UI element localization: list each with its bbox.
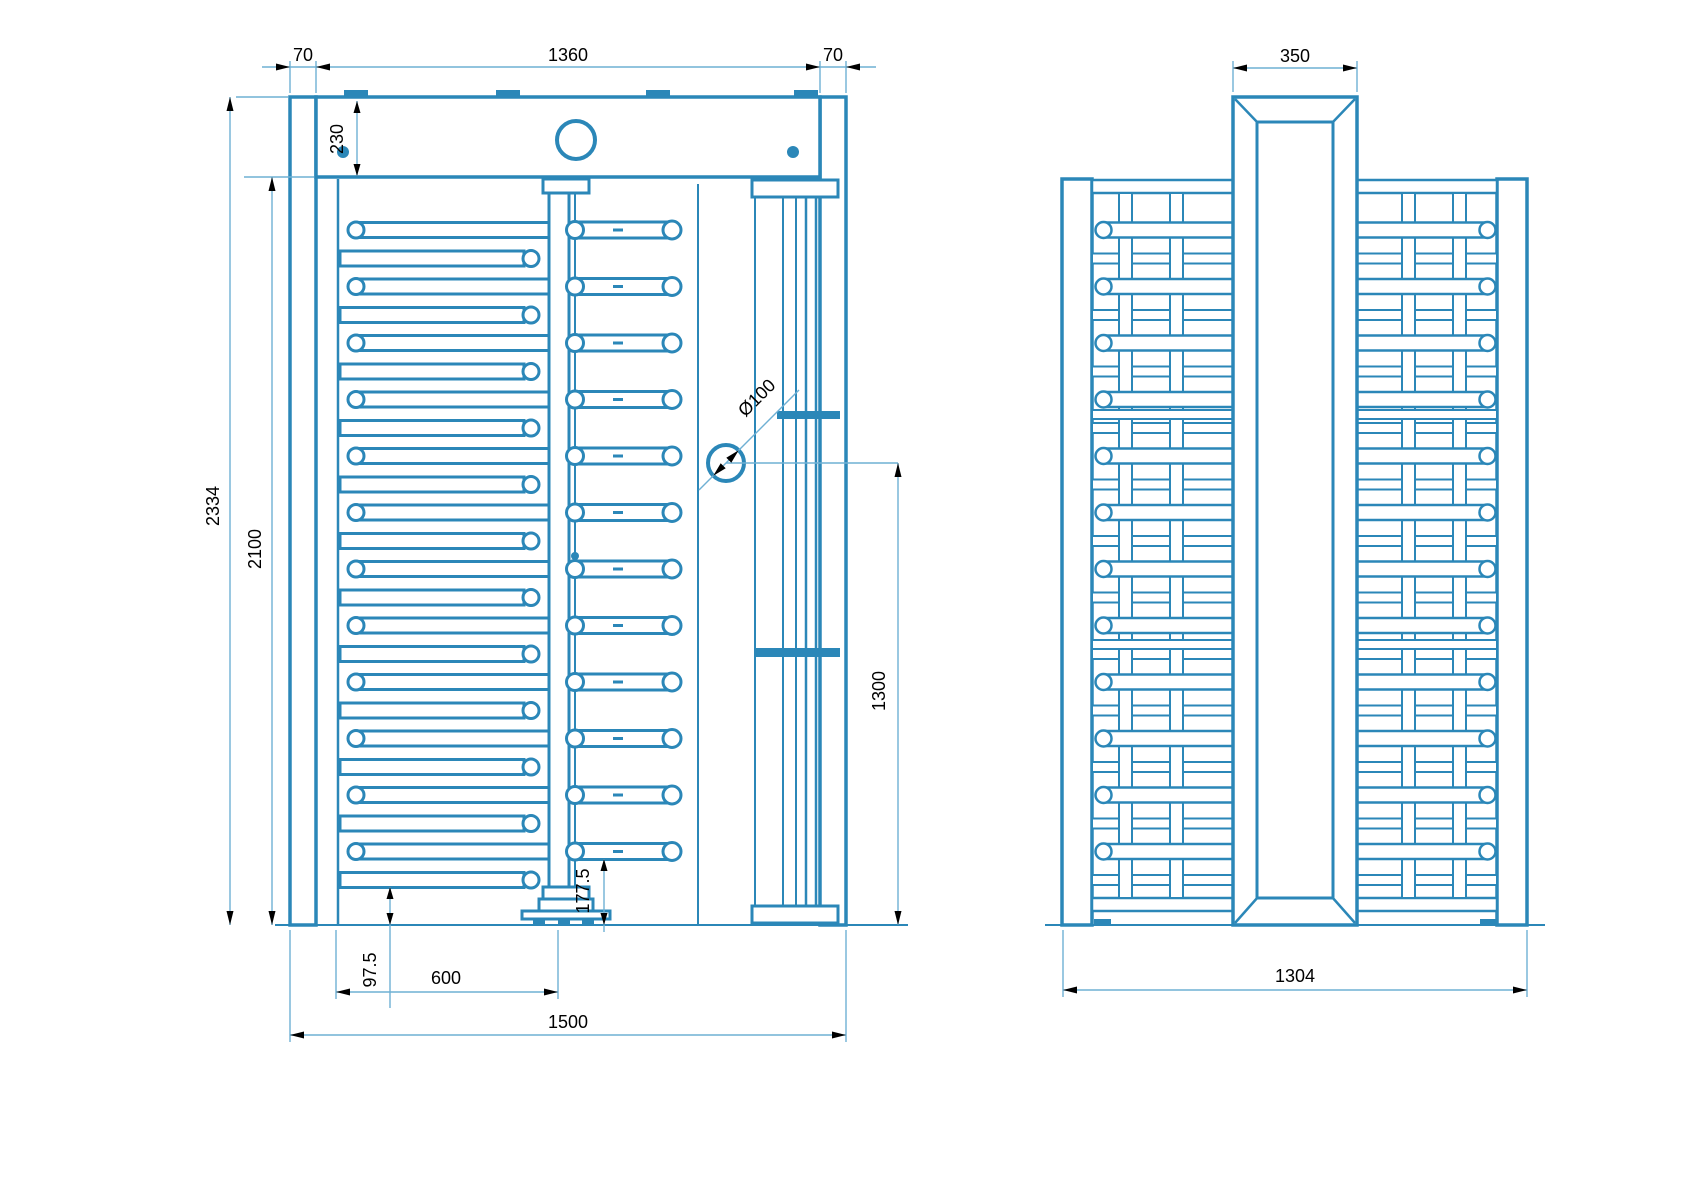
side-comb-bar: [1103, 449, 1233, 464]
rotor-arm-cap: [663, 617, 681, 635]
side-comb-bar-cap: [1480, 448, 1496, 464]
right-panel-top-rail: [1357, 180, 1497, 193]
side-comb-bar: [1103, 562, 1233, 577]
comb-bar-cap: [523, 307, 539, 323]
side-comb-bar-cap: [1480, 618, 1496, 634]
right-panel-mid-rail: [1357, 410, 1497, 419]
comb-bar: [340, 647, 524, 662]
dim-label-70-left: 70: [293, 45, 313, 65]
right-panel-mid-rail: [1357, 640, 1497, 649]
comb-bar-cap: [348, 279, 364, 295]
side-comb-bar-cap: [1480, 561, 1496, 577]
side-comb-bar: [1357, 392, 1487, 407]
wing-bottom-bracket: [752, 906, 838, 923]
rotor-arm-cap: [567, 843, 584, 860]
side-comb-bar: [1357, 675, 1487, 690]
left-panel-top-rail: [1092, 180, 1233, 193]
left-panel-mid-rail: [1092, 640, 1233, 649]
comb-bar-cap: [348, 392, 364, 408]
comb-bar: [340, 703, 524, 718]
turnstile-technical-drawing: 70 1360 70 230 2334 2100 Ø100 1300 97.5 …: [0, 0, 1684, 1190]
comb-bar: [357, 505, 549, 520]
side-comb-bar: [1103, 618, 1233, 633]
comb-bar: [357, 223, 549, 238]
side-comb-bar-cap: [1096, 731, 1112, 747]
side-thin-bar: [1357, 819, 1497, 829]
rotor-arm-cap: [567, 222, 584, 239]
rotor-arm-cap: [663, 730, 681, 748]
side-comb-bar-cap: [1096, 448, 1112, 464]
base-foot: [533, 919, 545, 925]
side-comb-bar: [1357, 788, 1487, 803]
side-comb-bar-cap: [1480, 731, 1496, 747]
rotor-arm-cap: [567, 448, 584, 465]
side-comb-bar: [1357, 279, 1487, 294]
dim-label-1304: 1304: [1275, 966, 1315, 986]
side-comb-bar-cap: [1096, 561, 1112, 577]
rotor-arm: [580, 335, 668, 351]
side-thin-bar: [1092, 875, 1233, 885]
dim-label-350: 350: [1280, 46, 1310, 66]
comb-bar-cap: [523, 872, 539, 888]
comb-bar: [340, 590, 524, 605]
center-column-face: [1257, 122, 1333, 898]
comb-bar-cap: [348, 448, 364, 464]
base-foot: [558, 919, 570, 925]
side-comb-bar-cap: [1096, 392, 1112, 408]
rotor-arm-cap: [567, 561, 584, 578]
header-tab: [646, 90, 670, 97]
side-thin-bar: [1357, 762, 1497, 772]
rotor-arm-cap: [663, 786, 681, 804]
comb-bar-cap: [523, 703, 539, 719]
rotor-arm: [580, 392, 668, 408]
rotor-arm-cap: [567, 391, 584, 408]
header-tab: [344, 90, 368, 97]
side-comb-bar-cap: [1096, 335, 1112, 351]
dim-label-97-5: 97.5: [360, 952, 380, 987]
rotor-arm-cap: [567, 335, 584, 352]
side-thin-bar: [1092, 819, 1233, 829]
comb-bar: [340, 873, 524, 888]
left-stile: [1062, 179, 1092, 925]
side-thin-bar: [1357, 875, 1497, 885]
comb-bar-cap: [348, 222, 364, 238]
drawing-page: 70 1360 70 230 2334 2100 Ø100 1300 97.5 …: [0, 0, 1684, 1190]
base-foot: [582, 919, 594, 925]
side-comb-bar: [1357, 731, 1487, 746]
rotor-arm-cap: [663, 221, 681, 239]
comb-bar-cap: [523, 533, 539, 549]
panel-foot: [1480, 919, 1497, 925]
side-thin-bar: [1357, 480, 1497, 490]
comb-bar: [357, 675, 549, 690]
side-comb-bar: [1103, 505, 1233, 520]
side-thin-bar: [1092, 762, 1233, 772]
comb-bar-cap: [348, 618, 364, 634]
comb-bar: [357, 449, 549, 464]
rotor-arm-cap: [663, 334, 681, 352]
wing-post-tube: [806, 197, 816, 906]
rotor-arm-cap: [663, 391, 681, 409]
side-thin-bar: [1092, 480, 1233, 490]
comb-bar-cap: [523, 420, 539, 436]
side-thin-bar: [1092, 254, 1233, 264]
side-comb-bar-cap: [1096, 279, 1112, 295]
side-thin-bar: [1092, 536, 1233, 546]
wing-connector-bar: [755, 648, 840, 657]
rotor-arm-cap: [663, 843, 681, 861]
rotor-arm: [580, 505, 668, 521]
header-tab: [794, 90, 818, 97]
comb-bar-cap: [348, 844, 364, 860]
side-comb-bar-cap: [1096, 222, 1112, 238]
side-comb-bar-cap: [1096, 505, 1112, 521]
side-comb-bar: [1103, 731, 1233, 746]
rotor-arm: [580, 279, 668, 295]
rotor-arm-cap: [567, 787, 584, 804]
rotor-arm-cap: [663, 560, 681, 578]
front-view: [275, 90, 908, 925]
rotor-arm-cap: [567, 730, 584, 747]
side-comb-bar: [1357, 336, 1487, 351]
side-thin-bar: [1092, 706, 1233, 716]
shaft-pivot-dot: [571, 552, 579, 560]
comb-bar-cap: [348, 674, 364, 690]
side-comb-bar: [1103, 844, 1233, 859]
side-comb-bar-cap: [1096, 618, 1112, 634]
comb-bar: [340, 760, 524, 775]
side-thin-bar: [1092, 649, 1233, 659]
comb-bar: [340, 308, 524, 323]
comb-bar-cap: [523, 364, 539, 380]
rotor-arm-cap: [663, 504, 681, 522]
side-comb-bar: [1103, 675, 1233, 690]
rotor-arm: [580, 618, 668, 634]
rotor-arm-cap: [663, 278, 681, 296]
side-thin-bar: [1092, 367, 1233, 377]
comb-bar: [357, 844, 549, 859]
right-frame-post: [820, 97, 846, 925]
comb-bar: [340, 251, 524, 266]
right-stile: [1497, 179, 1527, 925]
dim-label-1360: 1360: [548, 45, 588, 65]
side-comb-bar: [1357, 844, 1487, 859]
comb-bar-cap: [523, 646, 539, 662]
comb-bar: [357, 392, 549, 407]
side-comb-bar-cap: [1096, 674, 1112, 690]
rotor-arm-cap: [663, 673, 681, 691]
dim-label-600: 600: [431, 968, 461, 988]
side-thin-bar: [1357, 593, 1497, 603]
right-panel-bottom-rail: [1357, 898, 1497, 911]
side-thin-bar: [1357, 310, 1497, 320]
rotor-arm: [580, 674, 668, 690]
rotor-arm: [580, 787, 668, 803]
comb-bar-cap: [523, 251, 539, 267]
comb-bar: [340, 364, 524, 379]
side-comb-bar: [1357, 505, 1487, 520]
side-comb-bar-cap: [1480, 279, 1496, 295]
rotor-arm-cap: [567, 504, 584, 521]
side-comb-bar-cap: [1480, 335, 1496, 351]
side-thin-bar: [1357, 536, 1497, 546]
header-tab: [496, 90, 520, 97]
dim-label-177-5: 177.5: [573, 868, 593, 913]
rotor-arm: [580, 448, 668, 464]
comb-bar: [340, 534, 524, 549]
rotor-top-bracket: [543, 179, 589, 193]
wing-connector-bar: [777, 411, 840, 419]
side-comb-bar-cap: [1480, 505, 1496, 521]
left-panel-mid-rail: [1092, 410, 1233, 419]
side-comb-bar: [1103, 223, 1233, 238]
rotor-arms: [567, 221, 682, 861]
rotor-arm-cap: [567, 617, 584, 634]
comb-bar: [357, 618, 549, 633]
side-thin-bar: [1357, 254, 1497, 264]
left-panel-bottom-rail: [1092, 898, 1233, 911]
side-thin-bar: [1092, 423, 1233, 433]
side-thin-bar: [1357, 649, 1497, 659]
side-comb-bar: [1103, 336, 1233, 351]
rotor-arm: [580, 731, 668, 747]
comb-bar-cap: [348, 561, 364, 577]
side-view: [1045, 97, 1545, 925]
side-comb-bar: [1103, 392, 1233, 407]
header-bolt-dot: [787, 146, 799, 158]
comb-bar-cap: [348, 335, 364, 351]
dim-label-70-right: 70: [823, 45, 843, 65]
dim-label-2334: 2334: [203, 486, 223, 526]
dim-label-1500: 1500: [548, 1012, 588, 1032]
side-comb-bar-cap: [1480, 222, 1496, 238]
comb-bar-cap: [348, 505, 364, 521]
comb-bar: [340, 816, 524, 831]
left-frame-post: [290, 97, 316, 925]
side-comb-bar: [1357, 449, 1487, 464]
comb-bar-cap: [348, 787, 364, 803]
rotor-base-plate: [522, 911, 610, 919]
rotor-arm-cap: [567, 278, 584, 295]
rotor-arm-cap: [663, 447, 681, 465]
comb-bar-cap: [523, 816, 539, 832]
side-comb-bar-cap: [1480, 844, 1496, 860]
side-comb-bar: [1357, 223, 1487, 238]
rotor-shaft: [549, 193, 569, 887]
side-comb-bar: [1103, 279, 1233, 294]
panel-foot: [1094, 919, 1111, 925]
comb-bar: [357, 279, 549, 294]
dim-label-2100: 2100: [245, 529, 265, 569]
side-thin-bar: [1357, 367, 1497, 377]
rotor-arm: [580, 844, 668, 860]
comb-bar: [357, 336, 549, 351]
wing-top-bracket: [752, 180, 838, 197]
side-comb-bar-cap: [1480, 674, 1496, 690]
side-comb-bar-cap: [1480, 392, 1496, 408]
comb-bar: [340, 421, 524, 436]
comb-bar-cap: [523, 590, 539, 606]
comb-bar: [357, 788, 549, 803]
side-thin-bar: [1357, 423, 1497, 433]
comb-bar: [357, 731, 549, 746]
side-comb-bar: [1103, 788, 1233, 803]
side-thin-bar: [1357, 706, 1497, 716]
header-box: [316, 97, 820, 177]
side-thin-bar: [1092, 593, 1233, 603]
comb-bar: [340, 477, 524, 492]
comb-bar: [357, 562, 549, 577]
comb-bar-cap: [523, 759, 539, 775]
side-comb-bar-cap: [1096, 844, 1112, 860]
rotor-arm-cap: [567, 674, 584, 691]
dim-label-1300: 1300: [869, 671, 889, 711]
side-comb-bar-cap: [1480, 787, 1496, 803]
dim-label-diameter-100: Ø100: [734, 375, 779, 420]
comb-bar-cap: [348, 731, 364, 747]
side-comb-bar-cap: [1096, 787, 1112, 803]
dim-label-230: 230: [327, 124, 347, 154]
rotor-arm: [580, 561, 668, 577]
side-comb-bar: [1357, 562, 1487, 577]
side-comb-bar: [1357, 618, 1487, 633]
comb-bar-cap: [523, 477, 539, 493]
rotor-arm: [580, 222, 668, 238]
side-thin-bar: [1092, 310, 1233, 320]
